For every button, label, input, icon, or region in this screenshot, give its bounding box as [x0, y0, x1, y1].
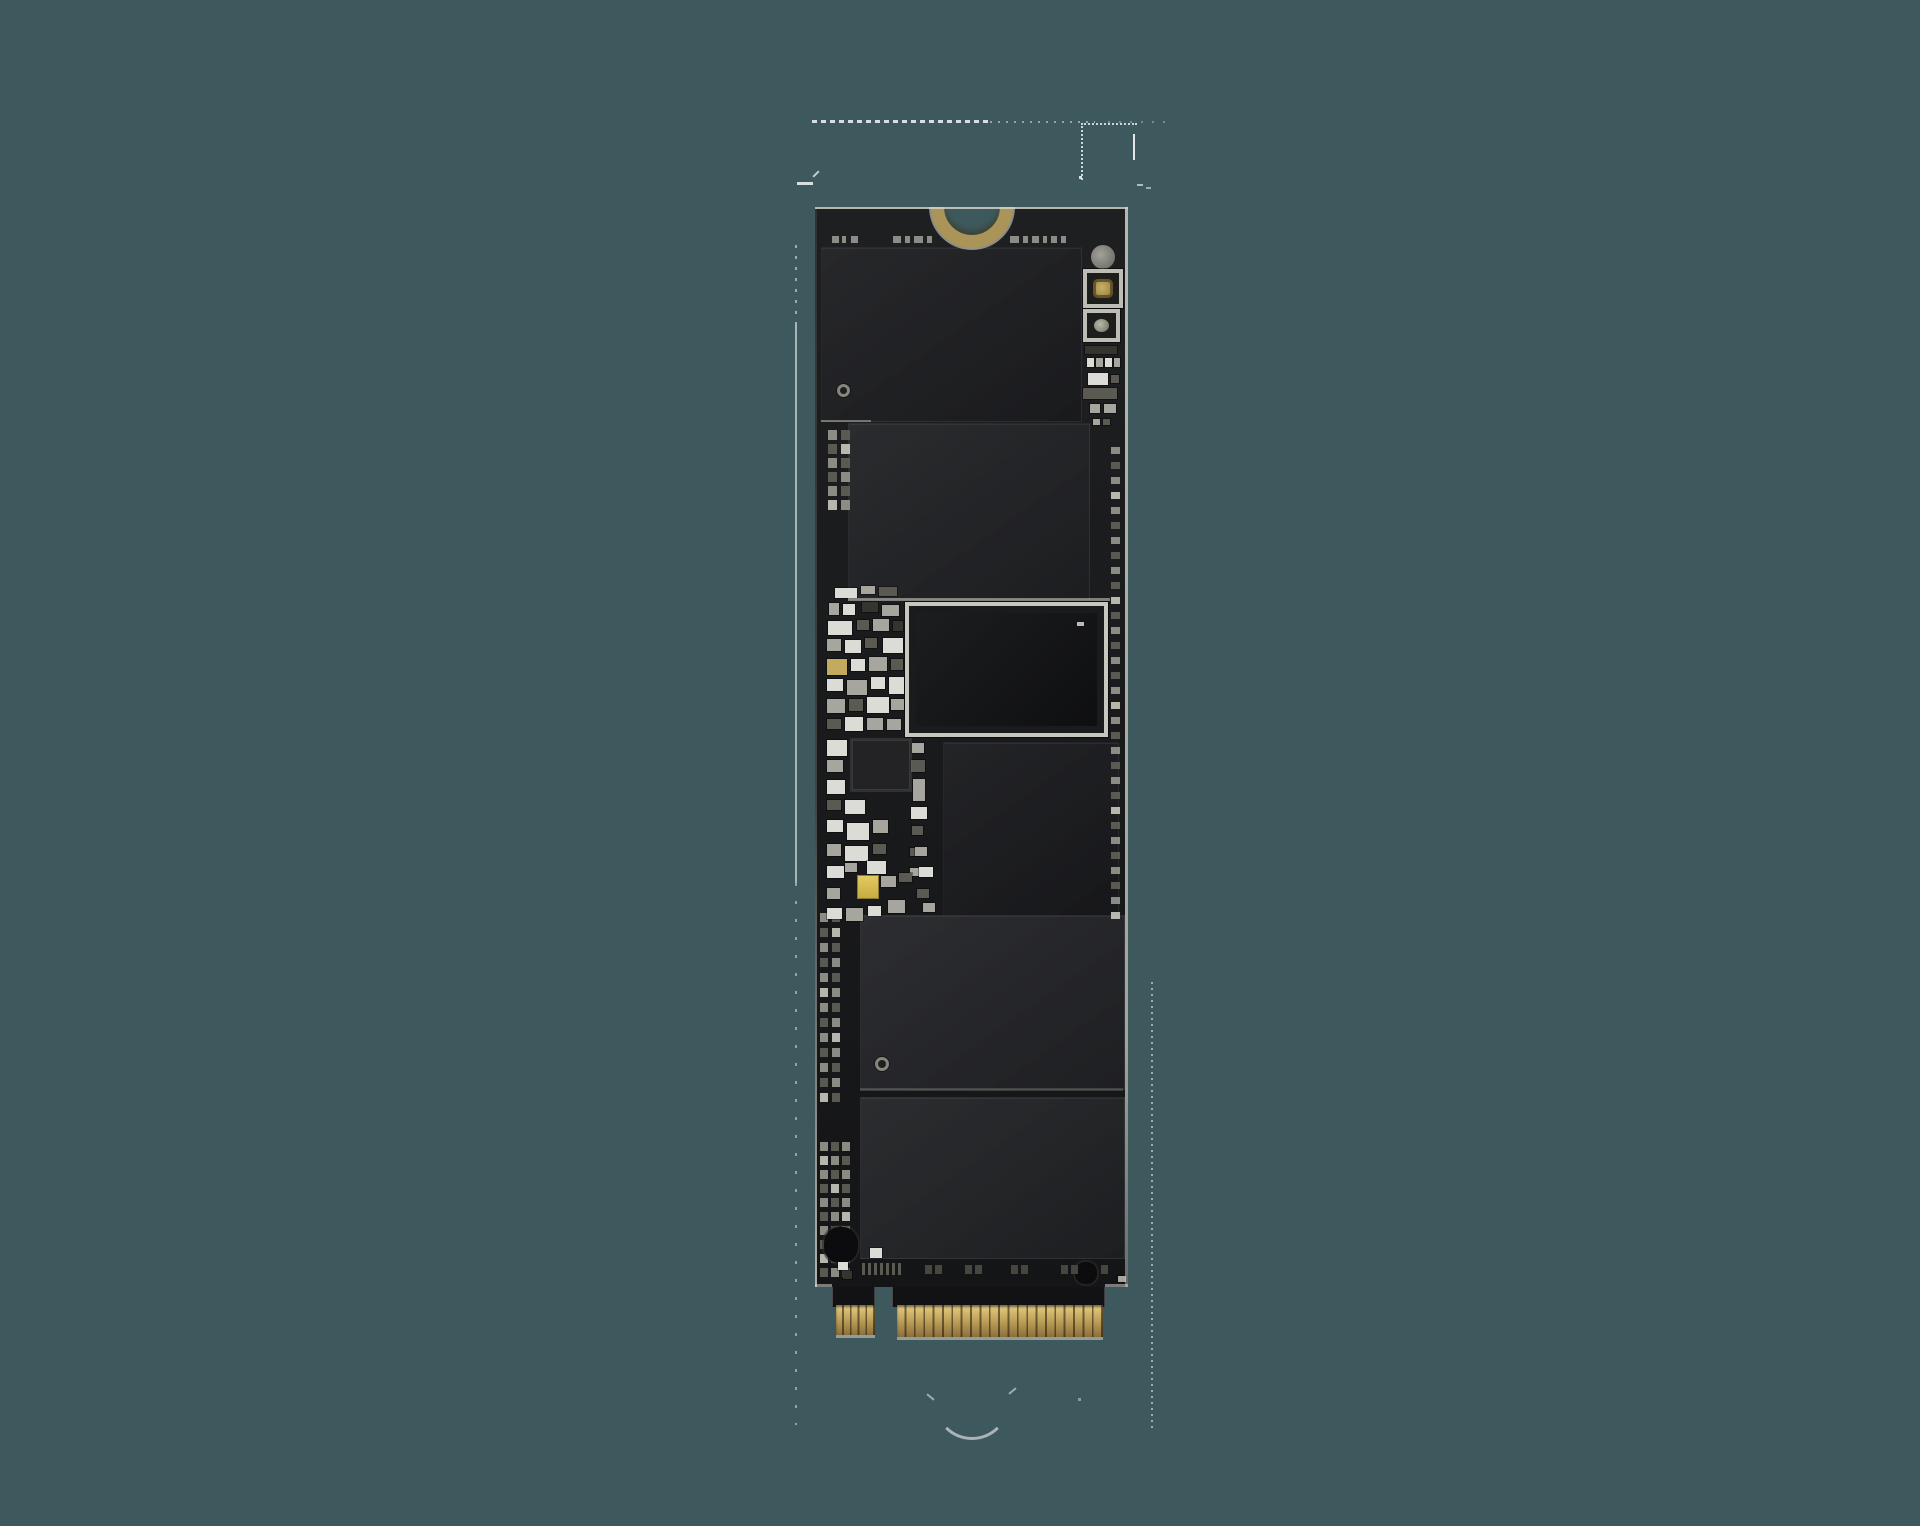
silkscreen-mark	[832, 236, 839, 243]
pad-grid-lower-left	[820, 988, 828, 997]
smd-part	[827, 639, 841, 651]
arc-tick-right	[1008, 1387, 1016, 1394]
edge-fingers-right	[897, 1305, 1103, 1337]
pad-column-right	[1111, 477, 1120, 484]
smd-part	[879, 587, 897, 596]
pad-grid-bottom-left	[842, 1184, 850, 1193]
pad-grid-bottom-left	[831, 1212, 839, 1221]
smd-part	[913, 779, 925, 801]
cache-chip	[943, 742, 1119, 919]
bottom-pad	[925, 1265, 932, 1274]
pad-grid-upper-left	[841, 430, 850, 440]
smd-part	[847, 823, 869, 840]
boundary-highlight	[821, 420, 871, 422]
pad-grid-bottom-left	[820, 1156, 828, 1165]
pad-grid-lower-left	[832, 1048, 840, 1057]
pad-column-right	[1111, 867, 1120, 874]
pad-column-right	[1111, 582, 1120, 589]
smd-part	[827, 908, 842, 919]
pad-grid-lower-left	[832, 1003, 840, 1012]
smd-part	[1088, 373, 1108, 385]
dashed-line-top	[812, 120, 988, 123]
pad-column-right	[1111, 492, 1120, 499]
slash-left-top	[812, 170, 819, 177]
pad-column-right	[1111, 702, 1120, 709]
bottom-pad	[1061, 1265, 1068, 1274]
smd-part	[911, 807, 927, 819]
smd-part	[845, 800, 865, 814]
fiducial-ring	[875, 1057, 889, 1071]
bottom-mark-bar	[892, 1263, 895, 1275]
smd-part	[1093, 419, 1100, 425]
smd-part	[849, 699, 863, 711]
pad-grid-lower-left	[832, 1078, 840, 1087]
smd-part	[923, 903, 935, 912]
round-component	[1091, 245, 1115, 269]
smd-part	[867, 718, 883, 730]
pad-grid-lower-left	[832, 958, 840, 967]
smd-part	[847, 680, 867, 695]
pad-grid-lower-left	[832, 973, 840, 982]
nand-chip-2	[848, 423, 1090, 600]
smd-part	[1083, 388, 1117, 399]
smd-part	[827, 780, 845, 794]
smd-part	[912, 826, 923, 835]
smd-part	[845, 717, 863, 731]
vline-solid-left	[795, 323, 797, 883]
pad-column-right	[1111, 597, 1120, 604]
silkscreen-mark	[927, 236, 932, 243]
pad-grid-lower-left	[832, 1033, 840, 1042]
smd-part	[827, 659, 847, 675]
pad-column-right	[1111, 537, 1120, 544]
smd-part	[845, 846, 868, 861]
pad-grid-upper-left	[828, 444, 837, 454]
pad-grid-bottom-left	[842, 1170, 850, 1179]
smd-part	[873, 619, 889, 631]
bottom-pad	[935, 1265, 942, 1274]
bottom-mark-bar	[862, 1263, 865, 1275]
smd-part	[827, 820, 843, 832]
pad-column-right	[1111, 612, 1120, 619]
pad-grid-bottom-left	[820, 1268, 828, 1277]
edge-highlight-left	[815, 207, 817, 1287]
dotted-rect-top-right	[1081, 123, 1137, 180]
pad-grid-lower-left	[820, 1003, 828, 1012]
pad-grid-upper-left	[841, 458, 850, 468]
smd-part	[827, 719, 841, 729]
smd-part	[868, 906, 881, 916]
pad-grid-upper-left	[828, 486, 837, 496]
bottom-pad	[1021, 1265, 1028, 1274]
smd-part	[891, 659, 903, 670]
silkscreen-mark	[1051, 236, 1057, 243]
controller-die-mark	[1077, 622, 1084, 626]
pad-column-right	[1111, 732, 1120, 739]
boundary-highlight	[860, 1088, 1123, 1091]
dark-component-bottom-left	[824, 1227, 858, 1263]
pad-grid-lower-left	[832, 988, 840, 997]
pad-grid-bottom-left	[842, 1156, 850, 1165]
smd-part	[917, 889, 929, 898]
pad-column-right	[1111, 462, 1120, 469]
smd-part	[873, 820, 888, 833]
pad-column-right	[1111, 762, 1120, 769]
pad-grid-bottom-left	[831, 1142, 839, 1151]
smd-part	[862, 602, 878, 612]
pad-grid-lower-left	[820, 1093, 828, 1102]
connector-tab	[892, 1287, 1105, 1307]
smd-part	[829, 603, 839, 615]
pad-grid-lower-left	[832, 943, 840, 952]
pad-grid-upper-left	[828, 458, 837, 468]
smd-part	[827, 866, 844, 878]
mounting-notch	[931, 207, 1013, 248]
tick-right-1	[1137, 184, 1143, 186]
dotted-line-top-2	[990, 121, 1095, 123]
silkscreen-mark	[1061, 236, 1066, 243]
smd-part	[1085, 346, 1117, 354]
framed-component-2	[1083, 309, 1120, 342]
bottom-mark-bar	[874, 1263, 877, 1275]
connector-plating-edge	[836, 1335, 875, 1338]
smd-part	[1104, 404, 1116, 413]
smd-part	[899, 873, 912, 882]
bottom-mark-bar	[898, 1263, 901, 1275]
smd-part	[915, 847, 927, 856]
vline-dotted-upper	[795, 245, 797, 323]
edge-highlight-bottom-right	[1105, 1284, 1128, 1287]
pcb-substrate	[815, 207, 1128, 1287]
connector-tab	[832, 1287, 875, 1307]
vline-dotted-lower	[795, 883, 797, 1425]
ssd-board	[815, 207, 1128, 1347]
bottom-pad	[1071, 1265, 1078, 1274]
pad-column-right	[1111, 447, 1120, 454]
bottom-mark-bar	[868, 1263, 871, 1275]
pad-column-right	[1111, 882, 1120, 889]
smd-part	[827, 699, 845, 713]
pad-column-right	[1111, 837, 1120, 844]
pad-column-right	[1111, 792, 1120, 799]
silkscreen-mark	[893, 236, 901, 243]
smd-part	[919, 867, 933, 877]
pad-column-right	[1111, 642, 1120, 649]
fiducial-ring	[837, 384, 850, 397]
pad-grid-bottom-left	[820, 1142, 828, 1151]
edge-highlight-bottom-left	[815, 1284, 832, 1287]
nand-chip-1	[821, 247, 1082, 422]
silkscreen-mark	[914, 236, 923, 243]
bottom-mark-bar	[880, 1263, 883, 1275]
arc-bottom-center	[934, 1364, 1010, 1440]
photo-background	[0, 0, 1920, 1526]
smd-part	[888, 900, 905, 913]
pad-grid-upper-left	[828, 430, 837, 440]
edge-highlight-right	[1125, 207, 1128, 1287]
smd-part	[881, 876, 896, 887]
pad-grid-bottom-left	[831, 1170, 839, 1179]
pad-column-right	[1111, 672, 1120, 679]
smd-part	[911, 760, 925, 772]
smd-part	[891, 699, 904, 710]
connector-plating-edge	[897, 1337, 1103, 1340]
pad-grid-bottom-left	[820, 1198, 828, 1207]
bottom-pad	[965, 1265, 972, 1274]
smd-part	[827, 740, 847, 756]
nand-chip-3	[860, 915, 1125, 1090]
pad-grid-bottom-left	[820, 1212, 828, 1221]
silkscreen-mark	[1043, 236, 1047, 243]
smd-part	[870, 1248, 882, 1258]
smd-part	[867, 697, 889, 713]
pad-grid-upper-left	[841, 444, 850, 454]
smd-part	[1105, 358, 1112, 367]
pad-column-right	[1111, 522, 1120, 529]
pad-column-right	[1111, 822, 1120, 829]
pad-column-right	[1111, 852, 1120, 859]
pad-grid-lower-left	[832, 1093, 840, 1102]
pad-grid-bottom-left	[820, 1184, 828, 1193]
pad-grid-upper-left	[828, 472, 837, 482]
pad-column-right	[1111, 747, 1120, 754]
smd-part	[871, 677, 885, 689]
smd-part	[893, 621, 903, 631]
silkscreen-mark	[851, 236, 858, 243]
pad-grid-lower-left	[820, 928, 828, 937]
pad-grid-bottom-left	[842, 1142, 850, 1151]
smd-part	[827, 679, 843, 691]
dark-component-bottom-right	[1075, 1262, 1097, 1284]
pad-grid-bottom-left	[831, 1156, 839, 1165]
vline-dotted-right	[1151, 982, 1153, 1432]
silkscreen-mark	[1010, 236, 1019, 243]
pad-column-right	[1111, 897, 1120, 904]
pad-grid-lower-left	[820, 973, 828, 982]
bottom-pad	[975, 1265, 982, 1274]
smd-part	[845, 863, 857, 872]
pad-column-right	[1111, 912, 1120, 919]
pad-grid-bottom-left	[842, 1212, 850, 1221]
pad-grid-upper-left	[841, 486, 850, 496]
smd-part	[838, 1262, 848, 1270]
gold-core	[1093, 279, 1113, 298]
pad-grid-bottom-left	[831, 1198, 839, 1207]
pad-column-right	[1111, 507, 1120, 514]
smd-part	[861, 586, 875, 594]
pad-grid-lower-left	[820, 943, 828, 952]
pad-grid-lower-left	[832, 1063, 840, 1072]
controller-die	[916, 613, 1097, 726]
arc-dot-right	[1078, 1398, 1081, 1401]
pad-grid-upper-left	[841, 500, 850, 510]
smd-part	[835, 588, 857, 598]
pad-grid-lower-left	[820, 1018, 828, 1027]
pad-grid-upper-left	[841, 472, 850, 482]
pad-grid-bottom-left	[831, 1184, 839, 1193]
pad-grid-bottom-left	[820, 1170, 828, 1179]
smd-part	[889, 677, 904, 694]
pad-column-right	[1111, 807, 1120, 814]
smd-part	[827, 760, 843, 772]
smd-part	[846, 908, 863, 921]
smd-part	[1090, 404, 1100, 413]
bottom-pad	[1011, 1265, 1018, 1274]
silkscreen-mark	[842, 236, 846, 243]
smd-part	[1096, 358, 1103, 367]
pad-grid-lower-left	[820, 958, 828, 967]
dot-rect-corner	[1079, 176, 1082, 179]
pad-column-right	[1111, 552, 1120, 559]
smd-part	[843, 1271, 852, 1279]
pad-column-right	[1111, 687, 1120, 694]
silkscreen-mark	[1032, 236, 1039, 243]
smd-part	[912, 743, 924, 753]
pad-grid-bottom-left	[842, 1198, 850, 1207]
smd-part	[887, 719, 901, 730]
boundary-highlight	[848, 598, 1110, 601]
smd-part	[827, 844, 841, 856]
tick-right-2	[1146, 187, 1151, 189]
pad-grid-lower-left	[820, 1033, 828, 1042]
smd-part	[827, 888, 840, 899]
pad-column-right	[1111, 777, 1120, 784]
small-ic	[852, 740, 910, 790]
pad-column-right	[1111, 717, 1120, 724]
pad-grid-lower-left	[820, 1048, 828, 1057]
controller-chip-frame	[905, 602, 1108, 737]
pad-grid-lower-left	[832, 1018, 840, 1027]
dash-left-top	[797, 182, 813, 185]
edge-fingers-left	[836, 1305, 875, 1335]
smd-part	[873, 844, 886, 854]
metal-core	[1094, 319, 1109, 332]
framed-component-1	[1083, 269, 1123, 308]
smd-part	[845, 640, 861, 653]
smd-part	[843, 604, 855, 615]
short-vline-top-right	[1133, 134, 1135, 160]
smd-part	[851, 659, 865, 671]
bottom-pad	[1101, 1265, 1108, 1274]
smd-part	[883, 638, 903, 653]
smd-part	[1111, 375, 1119, 383]
smd-part	[869, 657, 887, 671]
silkscreen-mark	[1023, 236, 1028, 243]
silkscreen-mark	[905, 236, 910, 243]
smd-part	[1103, 419, 1110, 425]
smd-part	[857, 620, 869, 630]
pad-grid-lower-left	[820, 1078, 828, 1087]
pad-column-right	[1111, 567, 1120, 574]
bottom-mark-bar	[886, 1263, 889, 1275]
smd-part	[1087, 358, 1094, 367]
smd-part	[828, 621, 852, 635]
pad-column-right	[1111, 627, 1120, 634]
yellow-capacitor	[857, 875, 879, 899]
smd-part	[827, 800, 841, 810]
pad-column-right	[1111, 657, 1120, 664]
pad-grid-lower-left	[820, 1063, 828, 1072]
smd-part	[1114, 358, 1120, 367]
smd-part	[865, 638, 877, 648]
nand-chip-4	[860, 1097, 1125, 1259]
pad-grid-lower-left	[832, 928, 840, 937]
pad-grid-upper-left	[828, 500, 837, 510]
edge-highlight-top	[815, 207, 1128, 209]
smd-part	[882, 605, 899, 616]
smd-part	[867, 861, 886, 874]
